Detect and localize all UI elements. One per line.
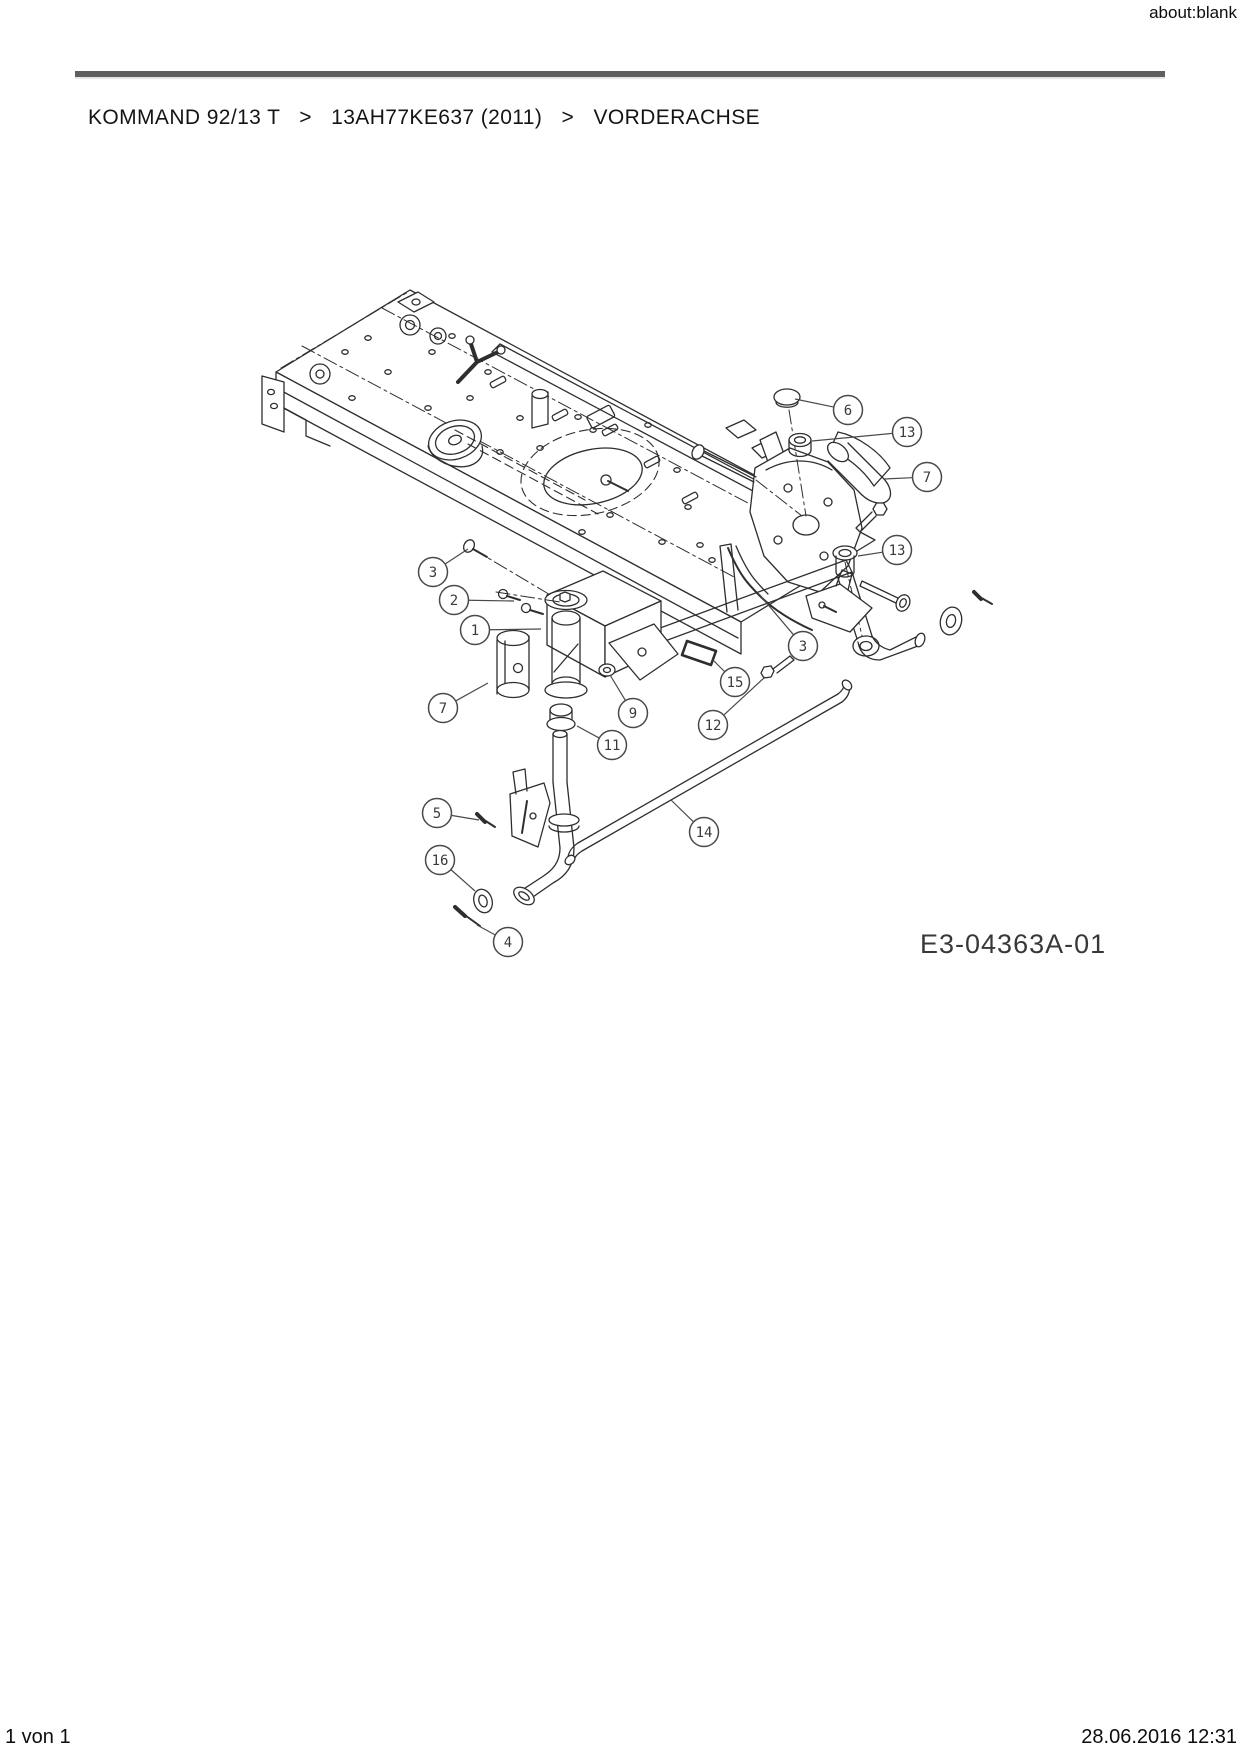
- callout-13: 13: [812, 418, 922, 447]
- parts-diagram: 613713321791115312145164 E3-04363A-01: [0, 0, 1240, 1754]
- svg-text:6: 6: [844, 403, 852, 419]
- callout-7: 7: [884, 463, 942, 492]
- part-washer-right: [937, 605, 964, 637]
- diagram-code-label: E3-04363A-01: [920, 929, 1106, 959]
- callout-5: 5: [423, 799, 480, 828]
- svg-text:16: 16: [432, 853, 449, 869]
- svg-text:9: 9: [629, 706, 637, 722]
- part-cap: [774, 389, 800, 407]
- svg-text:7: 7: [439, 701, 447, 717]
- part-sleeve-left: [497, 631, 529, 698]
- svg-text:15: 15: [727, 675, 744, 691]
- callout-11: 11: [577, 726, 627, 760]
- part-bushing-11: [547, 704, 575, 731]
- svg-text:11: 11: [604, 738, 621, 754]
- svg-text:7: 7: [923, 470, 931, 486]
- callout-15: 15: [713, 660, 750, 697]
- svg-text:12: 12: [705, 718, 722, 734]
- callout-3: 3: [419, 549, 469, 587]
- svg-text:4: 4: [504, 935, 512, 951]
- footer-page-info: 1 von 1: [5, 1726, 71, 1749]
- footer-timestamp: 28.06.2016 12:31: [1081, 1726, 1237, 1749]
- svg-text:3: 3: [429, 565, 437, 581]
- callout-4: 4: [477, 925, 523, 957]
- callout-6: 6: [795, 396, 863, 425]
- callout-14: 14: [671, 800, 719, 847]
- svg-text:14: 14: [696, 825, 713, 841]
- svg-text:13: 13: [889, 543, 906, 559]
- svg-text:13: 13: [899, 425, 916, 441]
- svg-text:3: 3: [799, 639, 807, 655]
- callout-7: 7: [429, 683, 489, 723]
- part-steering-shaft: [455, 731, 579, 927]
- callout-9: 9: [610, 675, 648, 728]
- svg-text:2: 2: [450, 593, 458, 609]
- svg-text:5: 5: [433, 806, 441, 822]
- svg-text:1: 1: [471, 623, 479, 639]
- callout-16: 16: [426, 846, 476, 892]
